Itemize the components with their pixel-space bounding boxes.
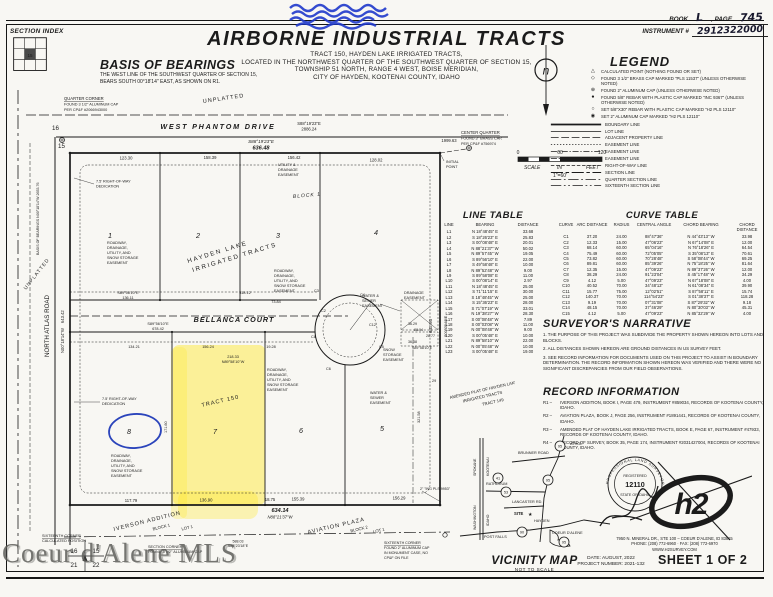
legend-symbol-icon: ● xyxy=(588,95,598,101)
dim-top-4: 128.02 xyxy=(370,158,383,163)
dim-row2-1: 156.24 xyxy=(202,345,214,349)
site-star-icon: ★ xyxy=(528,512,533,518)
record-title: RECORD INFORMATION xyxy=(543,386,767,398)
quarter-corner-note: QUARTER CORNER xyxy=(64,96,104,101)
svg-text:SNOW: SNOW xyxy=(383,348,395,352)
legend-line-sample-icon xyxy=(550,122,602,127)
svg-text:KOOTENAI: KOOTENAI xyxy=(486,457,490,476)
svg-text:SPOKANE: SPOKANE xyxy=(473,458,477,476)
svg-text:53: 53 xyxy=(504,491,508,495)
svg-text:IVERSON ADDITION: IVERSON ADDITION xyxy=(113,510,182,533)
lot-5: 5 xyxy=(380,424,385,433)
quarter-corner-note-2: FOUND 3 1/2" ALUMINUM CAP xyxy=(64,103,119,107)
row-dedication-top-2: DEDICATION xyxy=(96,185,119,189)
dim-row2-2: 19.28 xyxy=(266,345,276,349)
hayden-lake-tracts-label: HAYDEN LAKE IRRIGATED TRACTS xyxy=(187,232,278,275)
firm-logo: h2 xyxy=(630,458,752,544)
svg-text:SIXTEENTH CORNER: SIXTEENTH CORNER xyxy=(384,541,421,545)
record-item: R2 – AVIATION PLAZA, BOOK J, PAGE 256, I… xyxy=(543,413,767,424)
svg-text:POST FALLS: POST FALLS xyxy=(484,535,507,539)
svg-text:SEWER: SEWER xyxy=(362,299,376,303)
curve-table-headers: CURVEARC DISTANCERADIUSCENTRAL ANGLECHOR… xyxy=(556,223,768,234)
narrative-notes: 1. THE PURPOSE OF THIS PROJECT WAS SUBDI… xyxy=(543,332,765,372)
total-distance: 634.14 xyxy=(271,508,289,514)
svg-text:UTILITY, AND: UTILITY, AND xyxy=(274,279,298,283)
dim-row2-bearing: N89°58'10"W xyxy=(222,360,245,364)
pls-note: 2" "ING PLS 9953" xyxy=(420,487,451,491)
north-arrow: n xyxy=(524,40,568,120)
lot-3: 3 xyxy=(276,231,280,240)
svg-text:EASEMENT: EASEMENT xyxy=(383,358,405,362)
legend-line-item: EASEMENT LINE xyxy=(550,149,766,154)
legend-line-item: ADJACENT PROPERTY LINE xyxy=(550,135,766,140)
row-dedication-bottom-2: DEDICATION xyxy=(102,402,125,406)
bellanca-distance: 678.42 xyxy=(152,327,164,331)
svg-text:SITE: SITE xyxy=(514,511,524,516)
legend-point-items: △ CALCULATED POINT (NOTHING FOUND OR SET… xyxy=(588,69,766,120)
blue-pen-circle xyxy=(108,412,162,450)
curve-arc: 4.12 xyxy=(576,311,608,316)
dim-bot-4: 155.39 xyxy=(292,497,305,502)
legend-symbol-icon: ○ xyxy=(588,107,598,113)
line-table-rows: L1 N 18°48'45" E 33.68 L2 S 18°26'23" E … xyxy=(441,229,545,354)
svg-text:RATHDRUM: RATHDRUM xyxy=(486,482,507,486)
svg-text:EASEMENT: EASEMENT xyxy=(362,304,384,308)
svg-text:WATER &: WATER & xyxy=(370,391,387,395)
bellanca-bearing: S89°56'10"E xyxy=(147,322,169,326)
dim-row2-3: 218.33 xyxy=(227,355,239,359)
dist-1999: 1999.63 xyxy=(441,138,457,143)
dim-top-1: 123.30 xyxy=(120,156,133,161)
plat-sheet: SECTION INDEX 15 AIRBORNE INDUSTRIAL TRA… xyxy=(0,0,773,597)
lot-4: 4 xyxy=(374,228,378,237)
narrative-note: 2. ALL DISTANCES SHOWN HEREON ARE GROUND… xyxy=(543,346,765,352)
svg-text:ROADWAY,: ROADWAY, xyxy=(107,241,127,245)
aviation-plaza-label: AVIATION PLAZA BLOCK 2 LOT 1 xyxy=(307,513,386,549)
svg-text:HAYDEN: HAYDEN xyxy=(534,519,550,523)
dim-mid-3: 73.84 xyxy=(271,300,281,304)
svg-text:88.04: 88.04 xyxy=(414,328,423,332)
center-quarter-note-3: PER CP&F #756974 xyxy=(461,142,496,146)
row-dedication-top: 7.5' RIGHT-OF-WAY xyxy=(96,180,131,184)
svg-text:STORAGE: STORAGE xyxy=(383,353,402,357)
legend-line-sample-icon xyxy=(550,129,602,134)
center-quarter-note: CENTER QUARTER xyxy=(461,130,500,135)
svg-text:95: 95 xyxy=(546,479,550,483)
basis-of-bearings: BASIS OF BEARINGS THE WEST LINE OF THE S… xyxy=(100,58,280,85)
svg-text:SNOW STORAGE: SNOW STORAGE xyxy=(267,383,299,387)
roadway-easement-label-3: ROADWAY, DRAINAGE, UTILITY, AND SNOW STO… xyxy=(267,368,299,392)
svg-text:WASHINGTON: WASHINGTON xyxy=(473,505,477,530)
project-number-label: PROJECT NUMBER: 2021-132 xyxy=(556,562,666,568)
curve-radius: 5.00 xyxy=(608,311,635,316)
legend-line-item: BOUNDARY LINE xyxy=(550,122,766,127)
legend-line-sample-icon xyxy=(550,149,602,154)
dim-171: 171.60 xyxy=(164,421,168,433)
book-label: BOOK xyxy=(669,16,688,23)
narrative-note: 3. SEE RECORD INFORMATION FOR DOCUMENTS … xyxy=(543,355,765,372)
legend-item: ◉ SET 2" ALUMINUM CAP MARKED "H2 PLS 121… xyxy=(588,114,766,120)
block1-label: BLOCK 1 xyxy=(293,192,322,200)
svg-text:SNOW STORAGE: SNOW STORAGE xyxy=(107,256,139,260)
line-bearing: S 00°05'48" E xyxy=(457,349,513,354)
water-sewer-easement-label-2: WATER & SEWER EASEMENT xyxy=(370,391,392,405)
amended-plat-tract149-label: AMENDED PLAT OF HAYDEN LAKE IRRIGATED TR… xyxy=(449,379,515,413)
svg-text:36.29: 36.29 xyxy=(408,322,417,326)
narrative-title: SURVEYOR'S NARRATIVE xyxy=(543,318,765,330)
legend-symbol-icon: ◇ xyxy=(588,76,598,82)
svg-text:BLOCK 1: BLOCK 1 xyxy=(152,522,171,531)
svg-text:WATER &: WATER & xyxy=(362,294,379,298)
water-sewer-easement-label-1: WATER & SEWER EASEMENT xyxy=(362,294,384,308)
surveyors-narrative: SURVEYOR'S NARRATIVE 1. THE PURPOSE OF T… xyxy=(543,318,765,375)
legend-item: △ CALCULATED POINT (NOTHING FOUND OR SET… xyxy=(588,69,766,75)
svg-text:IDAHO: IDAHO xyxy=(486,514,490,526)
legend-symbol-icon: △ xyxy=(588,69,598,75)
vicinity-town-labels: ATHOL BRUNNER ROAD RATHDRUM LANCASTER RD… xyxy=(484,442,583,539)
record-item: R1 – IVERSON ADDITION, BOOK I, PAGE 479,… xyxy=(543,400,767,411)
legend-line-sample-icon xyxy=(550,135,602,140)
legend-item: ◇ FOUND 3 1/2" BRASS CAP MARKED "PLS 115… xyxy=(588,76,766,86)
curve-chord-distance: 4.00 xyxy=(729,311,765,316)
sheet-number: SHEET 1 OF 2 xyxy=(658,553,747,567)
svg-text:LANCASTER RD.: LANCASTER RD. xyxy=(512,500,542,504)
curve-central-angle: 47°09'23" xyxy=(635,311,673,316)
legend-item: ● FOUND 5/8" REBAR WITH PLASTIC CAP MARK… xyxy=(588,95,766,105)
page-label: , PAGE xyxy=(711,16,732,23)
scale-word-1: SCALE xyxy=(524,165,541,171)
legend-symbol-icon: ◉ xyxy=(588,114,598,120)
narrative-note: 1. THE PURPOSE OF THIS PROJECT WAS SUBDI… xyxy=(543,332,765,343)
legend-line-sample-icon xyxy=(550,156,602,161)
roadway-easement-label-4: ROADWAY, DRAINAGE, UTILITY, AND SNOW STO… xyxy=(111,454,143,478)
firm-web: WWW.H2SURVEY.COM xyxy=(582,547,767,552)
svg-text:EASEMENT: EASEMENT xyxy=(278,173,300,177)
dim-top-3: 156.42 xyxy=(288,155,301,160)
line-table-title: LINE TABLE xyxy=(441,210,545,221)
line-distance: 19.00 xyxy=(513,349,543,354)
legend-title: LEGEND xyxy=(610,54,766,69)
north-atlas-road-label: NORTH ATLAS ROAD xyxy=(44,294,51,357)
legend-line-item: SIXTEENTH SECTION LINE xyxy=(550,183,766,188)
svg-text:EASEMENT: EASEMENT xyxy=(274,289,296,293)
total-bearing: N88°21'37"W xyxy=(268,515,294,520)
svg-text:95: 95 xyxy=(562,541,566,545)
svg-text:EASEMENT: EASEMENT xyxy=(267,388,289,392)
svg-text:SNOW STORAGE: SNOW STORAGE xyxy=(274,284,306,288)
curve-table-title: CURVE TABLE xyxy=(556,210,768,221)
sheet-border-bottom xyxy=(6,577,764,579)
firm-info: 7950 N. MINERAL DR., STE 100 – COEUR D'A… xyxy=(582,536,767,552)
wp-distance-2: 2886.24 xyxy=(301,127,317,132)
svg-text:ATHOL: ATHOL xyxy=(570,442,582,446)
svg-text:EASEMENT: EASEMENT xyxy=(111,474,133,478)
lot-8: 8 xyxy=(127,427,131,436)
record-id: R2 – xyxy=(543,413,558,424)
svg-text:FOUND 2" ALUMINUM CAP: FOUND 2" ALUMINUM CAP xyxy=(384,546,430,550)
dim-mid-bearing: S89°56'10"E xyxy=(117,291,139,295)
curve-table: CURVE TABLE CURVEARC DISTANCERADIUSCENTR… xyxy=(556,210,768,316)
wp-distance: 636.48 xyxy=(252,146,270,152)
roadway-easement-label-1: ROADWAY, DRAINAGE, UTILITY, AND SNOW STO… xyxy=(107,241,139,265)
dim-mid-1: 136.11 xyxy=(122,296,133,300)
line-id: L23 xyxy=(441,349,457,354)
dim-321: 321.58 xyxy=(417,411,421,423)
svg-text:SEWER: SEWER xyxy=(370,396,384,400)
svg-text:S89°58'10"E: S89°58'10"E xyxy=(412,346,433,350)
blue-scribble xyxy=(286,0,396,32)
dim-mid-2: 318.12 xyxy=(239,291,251,295)
plat-drawing: UNPLATTED UNPLATTED QUARTER CORNER FOUND… xyxy=(8,85,515,575)
date-project-block: DATE: AUGUST, 2022 PROJECT NUMBER: 2021-… xyxy=(556,556,666,569)
dim-bot-2: 136.90 xyxy=(200,498,213,503)
legend-line-sample-icon xyxy=(550,163,602,168)
svg-text:95: 95 xyxy=(558,445,562,449)
svg-text:EASEMENT: EASEMENT xyxy=(370,401,392,405)
curve-id: C15 xyxy=(556,311,576,316)
dim-bot-5: 156.29 xyxy=(393,496,406,501)
snow-storage-easement-label: SNOW STORAGE EASEMENT xyxy=(383,348,405,362)
unplatted-label-left: UNPLATTED xyxy=(23,257,51,291)
dim-top-2: 158.39 xyxy=(204,155,217,160)
legend-line-item: EASEMENT LINE xyxy=(550,156,766,161)
record-id: R1 – xyxy=(543,400,558,411)
svg-text:ROADWAY,: ROADWAY, xyxy=(267,368,287,372)
svg-text:EASEMENT: EASEMENT xyxy=(107,261,129,265)
mls-watermark: Coeur d'Alene MLS xyxy=(2,538,237,569)
svg-text:IN MONUMENT CASE, NO: IN MONUMENT CASE, NO xyxy=(384,551,428,555)
svg-text:C12: C12 xyxy=(369,323,376,327)
dim-29: 29 xyxy=(432,379,436,383)
drainage-easement-label: DRAINAGE EASEMENT xyxy=(404,291,426,300)
wp-bearing: S88°19'23"E xyxy=(248,139,275,144)
svg-text:DRAINAGE,: DRAINAGE, xyxy=(111,459,132,463)
unplatted-label-top: UNPLATTED xyxy=(202,93,244,105)
svg-text:41: 41 xyxy=(496,477,500,481)
svg-text:36.38: 36.38 xyxy=(408,340,417,344)
svg-text:COEUR D'ALENE: COEUR D'ALENE xyxy=(552,531,583,535)
basis-body: THE WEST LINE OF THE SOUTHWEST QUARTER O… xyxy=(100,72,272,85)
dim-bot-3: 18.75 xyxy=(265,497,276,502)
svg-text:C2: C2 xyxy=(321,309,326,313)
lot-2: 2 xyxy=(195,231,200,240)
record-text: AVIATION PLAZA, BOOK J, PAGE 256, INSTRU… xyxy=(560,413,767,424)
legend-line-sample-icon xyxy=(550,170,602,175)
svg-text:CP&F ON FILE: CP&F ON FILE xyxy=(384,556,409,560)
lot-1: 1 xyxy=(108,231,112,240)
svg-text:EASEMENT: EASEMENT xyxy=(404,296,426,300)
svg-text:UTILITY, AND: UTILITY, AND xyxy=(107,251,131,255)
legend-line-sample-icon xyxy=(550,142,602,147)
legend-symbol-icon: ⊕ xyxy=(588,88,598,94)
svg-text:DRAINAGE,: DRAINAGE, xyxy=(107,246,128,250)
book-value: L xyxy=(696,11,703,24)
line-table: LINE TABLE LINEBEARINGDISTANCE L1 N 18°4… xyxy=(441,210,545,355)
record-text: IVERSON ADDITION, BOOK I, PAGE 479, INST… xyxy=(560,400,767,411)
legend-line-item: SECTION LINE xyxy=(550,170,766,175)
legend-line-items: BOUNDARY LINE LOT LINE ADJACENT PROPERTY… xyxy=(550,122,766,189)
lot-6: 6 xyxy=(299,426,303,435)
legend-line-item: QUARTER SECTION LINE xyxy=(550,177,766,182)
right-boundary-distance: 642.93 xyxy=(428,319,433,333)
row-dedication-bottom: 7.5' RIGHT-OF-WAY xyxy=(102,397,137,401)
svg-text:28.77: 28.77 xyxy=(426,334,435,338)
legend-line-item: RIGHT-OF-WAY LINE xyxy=(550,163,766,168)
book-page-block: BOOK L , PAGE 745 INSTRUMENT # 291232200… xyxy=(596,11,768,37)
wp-bearing-2: S88°19'23"E xyxy=(297,121,321,126)
svg-text:ROADWAY,: ROADWAY, xyxy=(111,454,131,458)
svg-text:DRAINAGE: DRAINAGE xyxy=(278,168,298,172)
legend: LEGEND △ CALCULATED POINT (NOTHING FOUND… xyxy=(588,54,766,190)
firm-logo-text: h2 xyxy=(674,488,708,521)
north-atlas-bearing: N00°18'14"W643.42 xyxy=(60,310,65,353)
svg-text:C8: C8 xyxy=(311,335,316,339)
dim-bot-1: 117.79 xyxy=(125,498,138,503)
curve-table-rows: C1 37.20 24.00 88°47'36" N 44°43'13" W 3… xyxy=(556,234,768,316)
curve-chord-bearing: N 85°32'29" W xyxy=(673,311,729,316)
legend-item: ⊕ FOUND 2" ALUMINUM CAP (UNLESS OTHERWIS… xyxy=(588,88,766,94)
scale-tick-0: 0 xyxy=(517,150,520,156)
section-15-label: 15 xyxy=(58,143,65,150)
utility-drainage-easement-label: UTILITY & DRAINAGE EASEMENT xyxy=(278,163,300,177)
svg-text:C6: C6 xyxy=(326,367,331,371)
dim-row2-0: 134.21 xyxy=(128,345,140,349)
section-16-label: 16 xyxy=(52,125,59,132)
legend-line-sample-icon xyxy=(550,177,602,182)
svg-text:LOT 1: LOT 1 xyxy=(181,524,194,532)
svg-text:UTILITY, AND: UTILITY, AND xyxy=(267,378,291,382)
basis-title: BASIS OF BEARINGS xyxy=(100,58,280,72)
svg-text:SNOW STORAGE: SNOW STORAGE xyxy=(111,469,143,473)
page-value: 745 xyxy=(740,11,763,25)
svg-text:UTILITY &: UTILITY & xyxy=(278,163,296,167)
legend-line-item: LOT LINE xyxy=(550,129,766,134)
svg-text:DRAINAGE,: DRAINAGE, xyxy=(267,373,288,377)
legend-item: ○ SET 5/8"X30" REBAR WITH PLASTIC CAP MA… xyxy=(588,107,766,113)
basis-line-label: BASIS OF BEARINGS N00°18'14"W 2653.76 xyxy=(36,182,40,255)
instrument-label: INSTRUMENT # xyxy=(642,28,689,35)
svg-text:BRUNNER ROAD: BRUNNER ROAD xyxy=(518,451,549,455)
legend-line-sample-icon xyxy=(550,183,602,188)
svg-text:ROADWAY,: ROADWAY, xyxy=(274,269,294,273)
svg-text:90: 90 xyxy=(520,531,524,535)
roadway-easement-label-2: ROADWAY, DRAINAGE, UTILITY, AND SNOW STO… xyxy=(274,269,306,293)
svg-text:UTILITY, AND: UTILITY, AND xyxy=(111,464,135,468)
center-quarter-note-2: FOUND 3" BRASS CAP, xyxy=(461,137,502,141)
svg-text:DRAINAGE: DRAINAGE xyxy=(404,291,424,295)
svg-text:DRAINAGE,: DRAINAGE, xyxy=(274,274,295,278)
svg-text:C3: C3 xyxy=(314,289,319,293)
quarter-corner-note-3: PER CP&F #2066943000 xyxy=(64,108,107,112)
legend-line-item: EASEMENT LINE xyxy=(550,142,766,147)
vicinity-state-labels: SPOKANE KOOTENAI WASHINGTON IDAHO xyxy=(473,457,490,530)
north-letter: n xyxy=(543,64,550,78)
bellanca-court-label: BELLANCA COURT xyxy=(194,315,275,324)
initial-point-label: INITIAL xyxy=(446,160,459,164)
instrument-value: 2912322000 xyxy=(697,24,763,37)
sixteenth-corner-right-note: SIXTEENTH CORNER FOUND 2" ALUMINUM CAP I… xyxy=(384,541,430,560)
initial-point-label-2: POINT xyxy=(446,165,458,169)
west-phantom-drive-label: WEST PHANTOM DRIVE xyxy=(160,122,275,131)
